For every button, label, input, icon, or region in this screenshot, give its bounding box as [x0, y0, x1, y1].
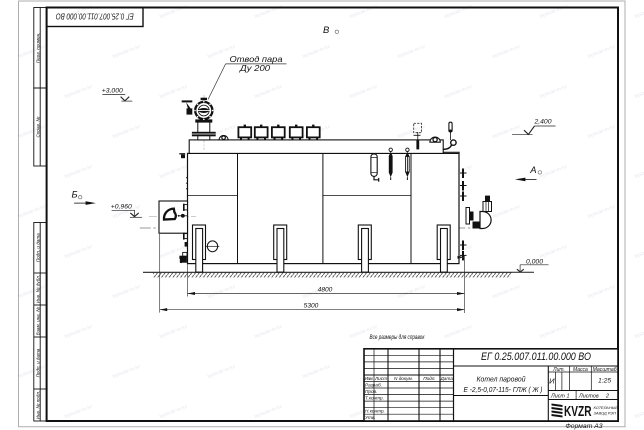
- svg-text:1: 1: [567, 393, 570, 399]
- svg-text:Инв. № дубл.: Инв. № дубл.: [35, 275, 40, 303]
- svg-text:КОТЕЛЬНЫЙ: КОТЕЛЬНЫЙ: [594, 405, 619, 410]
- svg-text:Все размеры для справок: Все размеры для справок: [370, 333, 426, 341]
- svg-text:Изм.: Изм.: [365, 376, 374, 381]
- svg-text:Т.контр.: Т.контр.: [365, 396, 384, 401]
- svg-text:Справ. №: Справ. №: [35, 117, 40, 138]
- svg-text:N докум.: N докум.: [394, 376, 413, 381]
- svg-text:Ду 200: Ду 200: [239, 63, 270, 73]
- svg-text:Листов: Листов: [578, 393, 599, 399]
- svg-text:Подп. и дата: Подп. и дата: [35, 348, 40, 377]
- svg-text:Лист: Лист: [374, 376, 387, 381]
- svg-text:2: 2: [605, 393, 609, 399]
- svg-text:ЕГ 0.25.007.011.00.000 ВО: ЕГ 0.25.007.011.00.000 ВО: [481, 351, 591, 363]
- svg-text:Подп.: Подп.: [423, 376, 435, 381]
- svg-text:ЕГ 0.25.007.011.00.000 ВО: ЕГ 0.25.007.011.00.000 ВО: [56, 12, 134, 21]
- svg-text:1:25: 1:25: [598, 377, 611, 384]
- svg-text:Б: Б: [72, 189, 78, 200]
- svg-text:Взам. инв. №: Взам. инв. №: [35, 307, 40, 335]
- svg-text:Е -2,5-0,07-115- ГЛЖ ( Ж ): Е -2,5-0,07-115- ГЛЖ ( Ж ): [464, 385, 543, 394]
- svg-text:5300: 5300: [304, 303, 319, 310]
- svg-text:+3,000: +3,000: [102, 88, 123, 95]
- svg-text:Дата: Дата: [440, 376, 454, 381]
- svg-text:Н.контр.: Н.контр.: [365, 409, 385, 414]
- svg-text:Лит.: Лит.: [552, 367, 565, 373]
- svg-text:Котел паровой: Котел паровой: [477, 374, 527, 383]
- svg-text:Подп. и дата: Подп. и дата: [35, 233, 40, 262]
- svg-text:Инв. № подл.: Инв. № подл.: [35, 391, 40, 420]
- svg-text:4800: 4800: [318, 287, 333, 294]
- svg-text:Утв.: Утв.: [365, 415, 376, 420]
- svg-text:Перв. примен.: Перв. примен.: [35, 33, 40, 64]
- svg-text:Масштаб: Масштаб: [593, 367, 617, 373]
- svg-text:0,000: 0,000: [526, 258, 543, 265]
- svg-text:+0,960: +0,960: [111, 203, 132, 210]
- svg-text:И: И: [549, 377, 555, 386]
- svg-text:KVZR: KVZR: [564, 404, 592, 420]
- svg-text:Лист: Лист: [550, 393, 565, 399]
- svg-text:В: В: [323, 24, 329, 35]
- svg-text:Масса: Масса: [573, 367, 588, 373]
- svg-text:Формат А3: Формат А3: [565, 423, 602, 430]
- svg-text:2,400: 2,400: [533, 118, 551, 125]
- svg-text:А: А: [529, 164, 536, 175]
- svg-text:ЗАВОД РЭП: ЗАВОД РЭП: [594, 411, 617, 416]
- svg-text:Пров.: Пров.: [365, 389, 377, 394]
- svg-text:Разраб.: Разраб.: [365, 382, 382, 387]
